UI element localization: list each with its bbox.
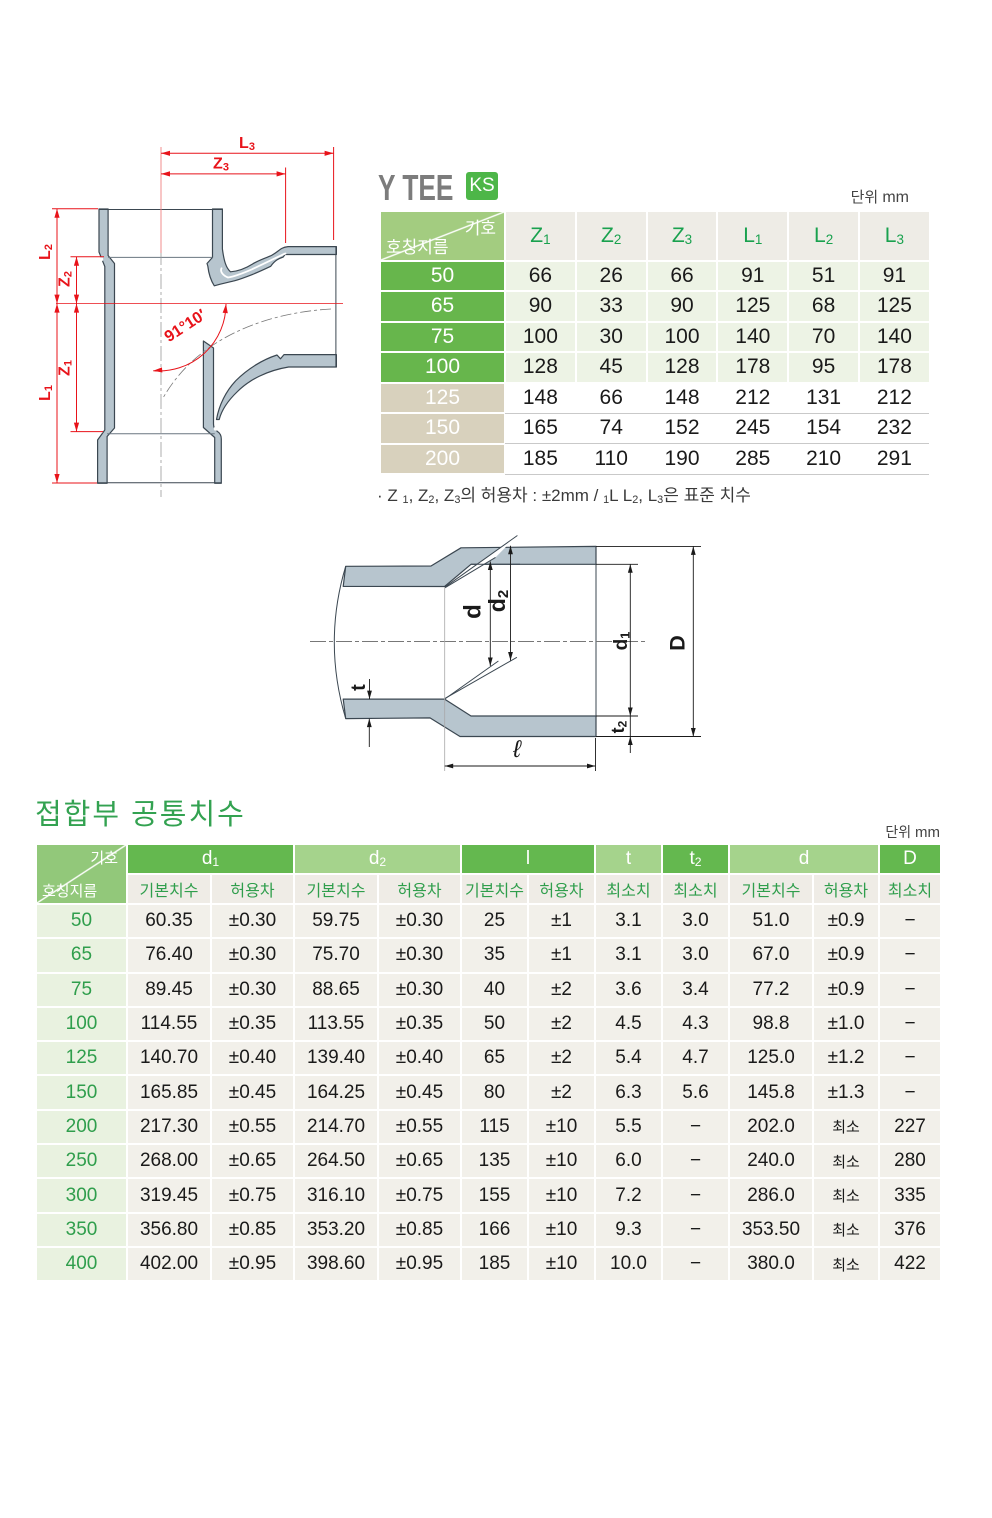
svg-text:t2: t2 [608, 720, 630, 733]
svg-text:ℓ: ℓ [512, 736, 522, 763]
svg-text:d2: d2 [484, 590, 512, 612]
svg-text:Z2: Z2 [57, 271, 75, 287]
svg-text:Z3: Z3 [213, 156, 229, 174]
svg-text:L2: L2 [37, 244, 55, 260]
svg-text:L1: L1 [37, 385, 55, 401]
svg-text:d1: d1 [611, 632, 633, 651]
svg-text:Z1: Z1 [57, 360, 75, 376]
svg-text:L3: L3 [239, 135, 255, 153]
svg-text:d: d [460, 604, 487, 619]
svg-text:D: D [666, 635, 690, 651]
svg-text:91°10′: 91°10′ [162, 307, 210, 346]
svg-text:t: t [348, 684, 370, 691]
